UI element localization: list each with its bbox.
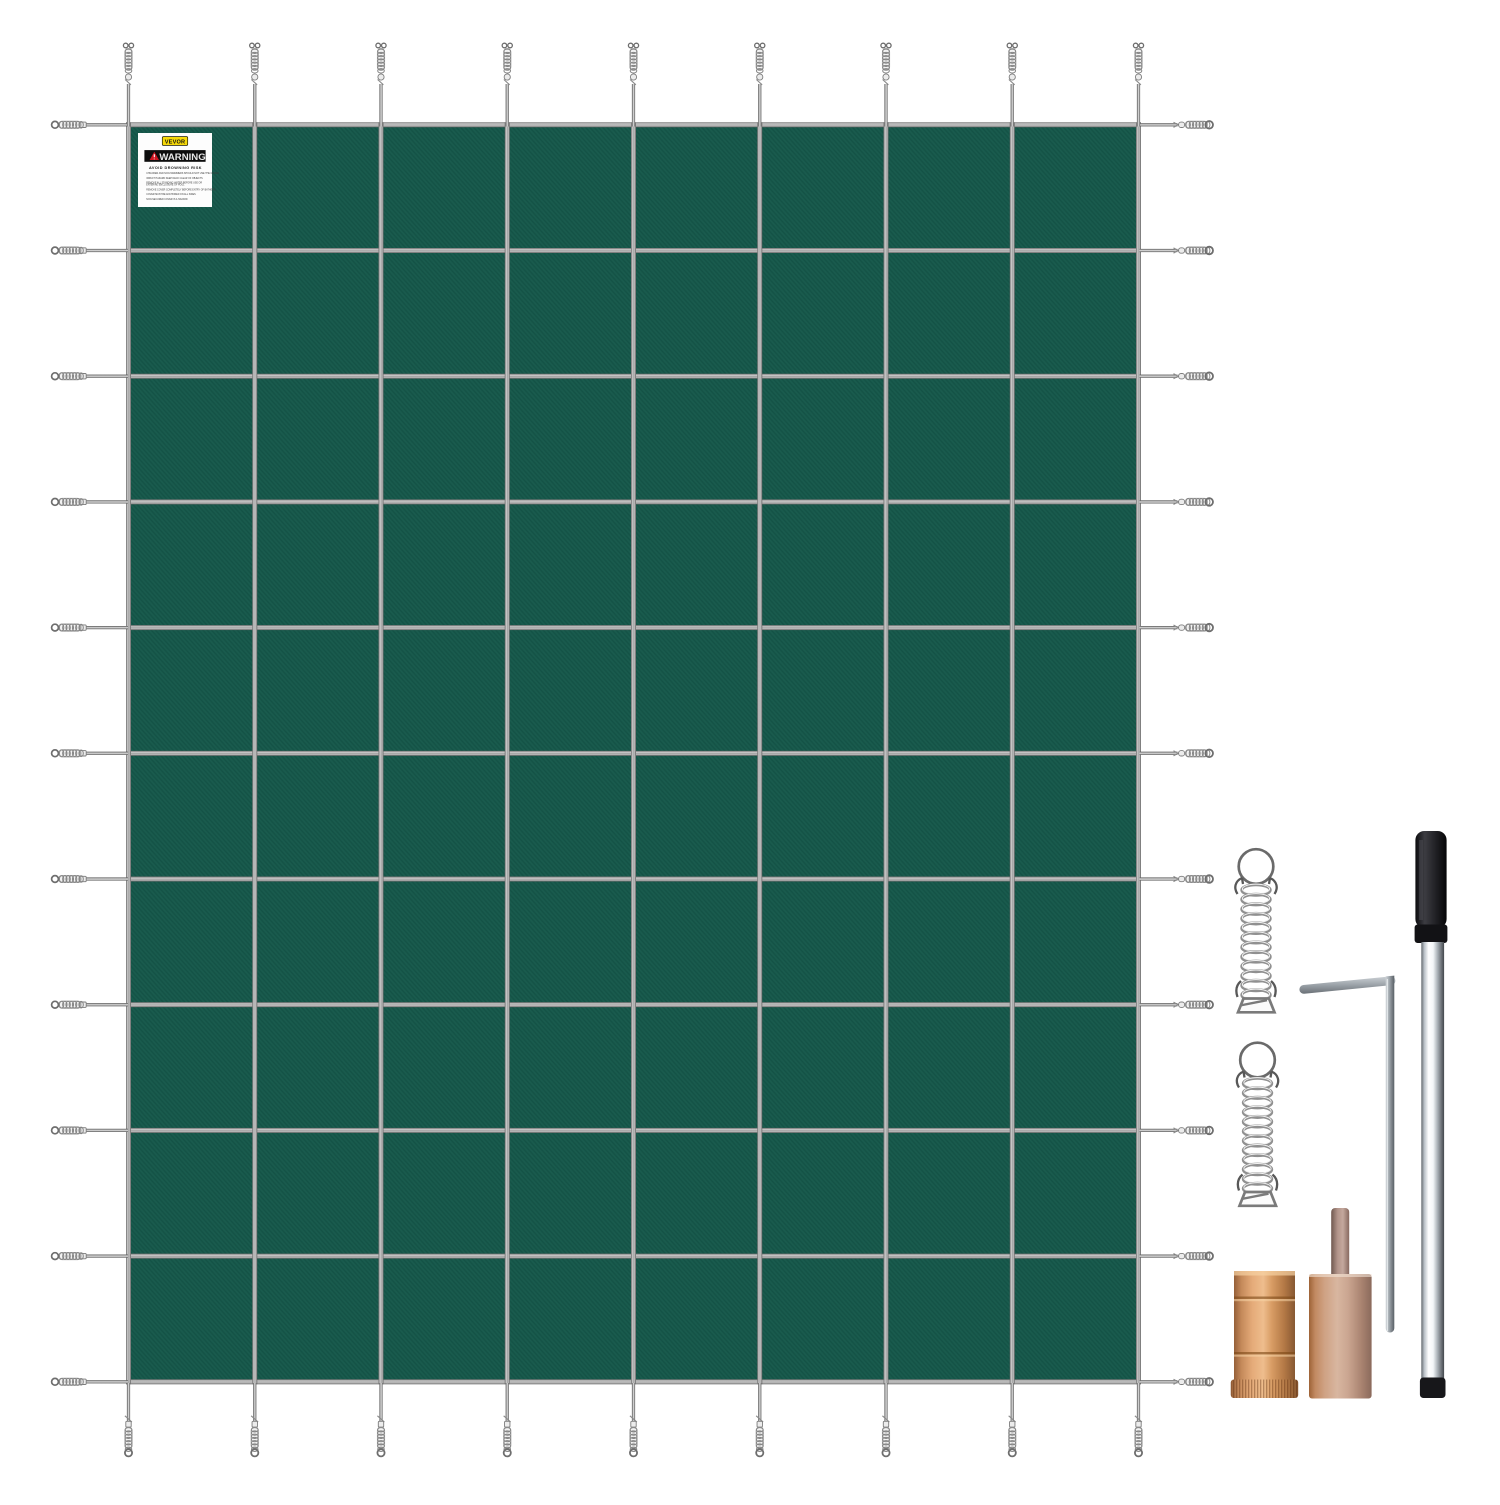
svg-text:REMOVE COVER COMPLETELY BEFORE: REMOVE COVER COMPLETELY BEFORE ENTRY OF … xyxy=(146,188,216,191)
svg-text:IMPACT HAZARD KEEP DECK CLEAR: IMPACT HAZARD KEEP DECK CLEAR OF OBJECTS xyxy=(146,177,203,180)
svg-text:COVER MUST BE ANCHORED ON ALL: COVER MUST BE ANCHORED ON ALL SIDES xyxy=(146,193,196,196)
svg-text:AVOID DROWNING RISK: AVOID DROWNING RISK xyxy=(149,166,202,170)
svg-text:NON-SECURED COVER IS A HAZARD: NON-SECURED COVER IS A HAZARD xyxy=(146,198,188,201)
svg-text:CHILDREN AND NON-SWIMMERS SHOU: CHILDREN AND NON-SWIMMERS SHOULD NOT USE… xyxy=(146,172,219,175)
svg-text:WARNING: WARNING xyxy=(159,152,205,163)
svg-text:ENTERING ENCLOSURE OF POOL: ENTERING ENCLOSURE OF POOL xyxy=(146,185,185,187)
svg-text:VEVOR: VEVOR xyxy=(165,139,186,145)
